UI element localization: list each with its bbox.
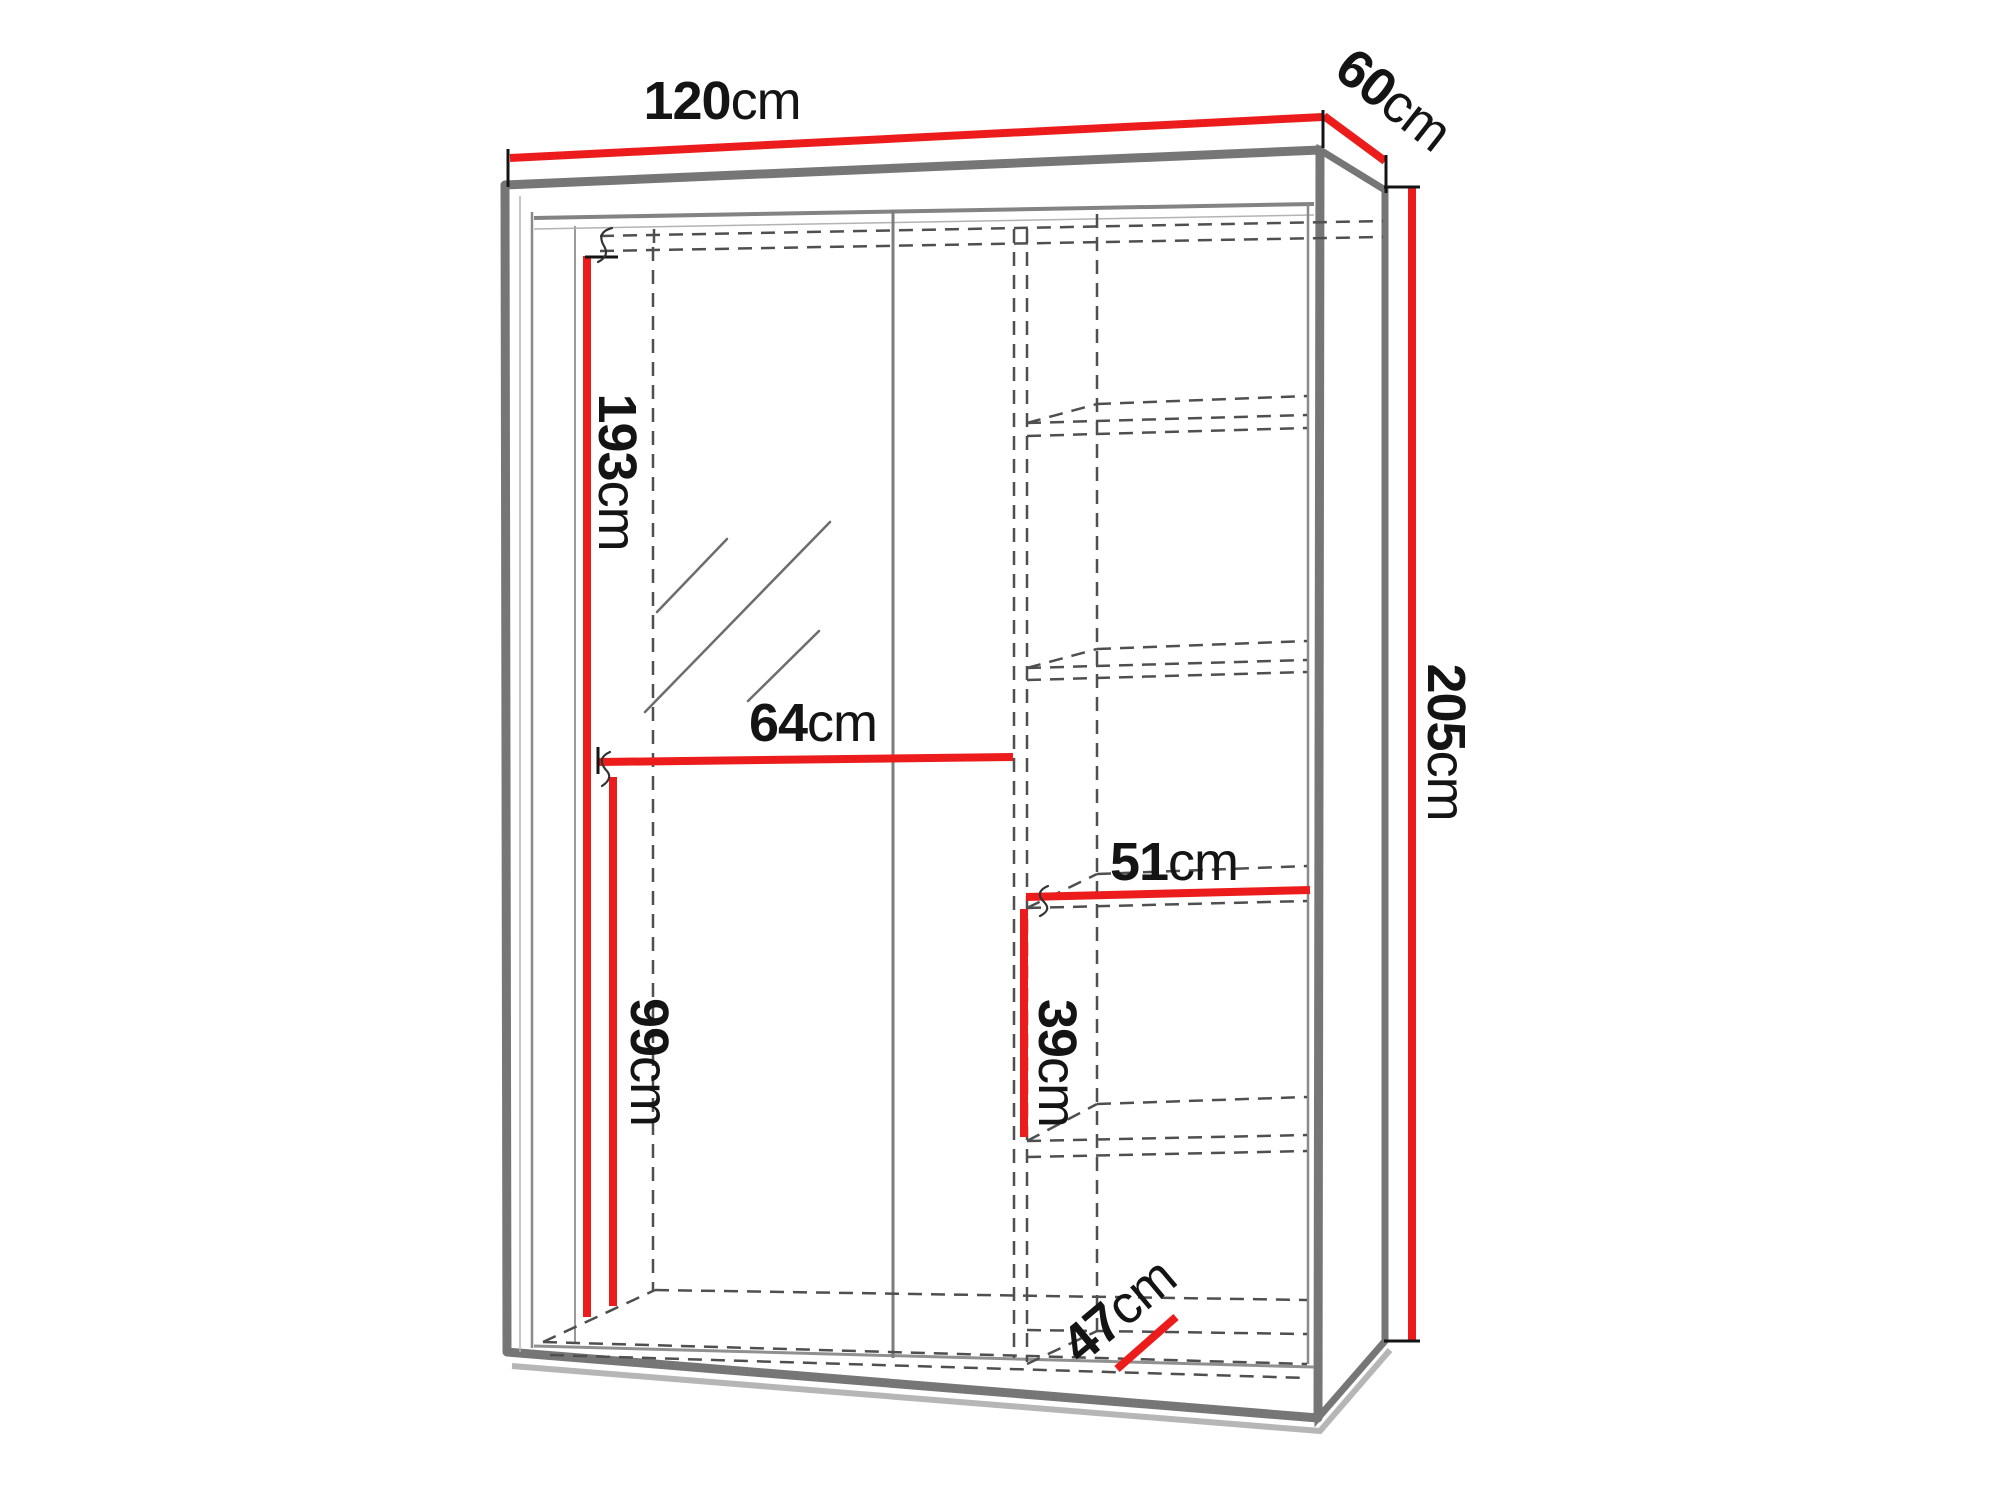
wardrobe-dimension-diagram: 120cm 60cm 205cm 193cm 64cm 99cm 51cm 39… — [0, 0, 2000, 1500]
shelf-top — [1027, 396, 1307, 436]
dimension-line-hanging-width — [599, 757, 1013, 762]
dim-label-shelf-spacing: 39cm — [1027, 999, 1087, 1127]
mirror-glare-icon — [645, 522, 830, 712]
dimension-lines — [510, 116, 1412, 1369]
cabinet-outline — [505, 150, 1390, 1431]
dim-label-depth: 60cm — [1324, 37, 1462, 163]
shelf-second — [1027, 641, 1307, 680]
dim-label-interior-depth: 47cm — [1050, 1247, 1187, 1375]
interior-dashed-lines — [543, 214, 1383, 1378]
dim-label-interior-height: 193cm — [587, 393, 647, 550]
cabinet-front-face — [505, 150, 1320, 1418]
dim-label-shelf-width: 51cm — [1110, 832, 1238, 892]
cabinet-side-panel — [1318, 150, 1385, 1418]
wardrobe-drawing: 120cm 60cm 205cm 193cm 64cm 99cm 51cm 39… — [0, 0, 2000, 1500]
dim-label-lower-height: 99cm — [619, 998, 679, 1126]
dim-label-width: 120cm — [643, 71, 800, 131]
dim-label-hanging-width: 64cm — [749, 693, 877, 753]
dimension-squiggles — [598, 228, 1048, 916]
dimension-ticks — [508, 110, 1420, 1341]
cabinet-interior-lines — [520, 196, 1314, 1367]
dim-label-height: 205cm — [1416, 663, 1476, 820]
